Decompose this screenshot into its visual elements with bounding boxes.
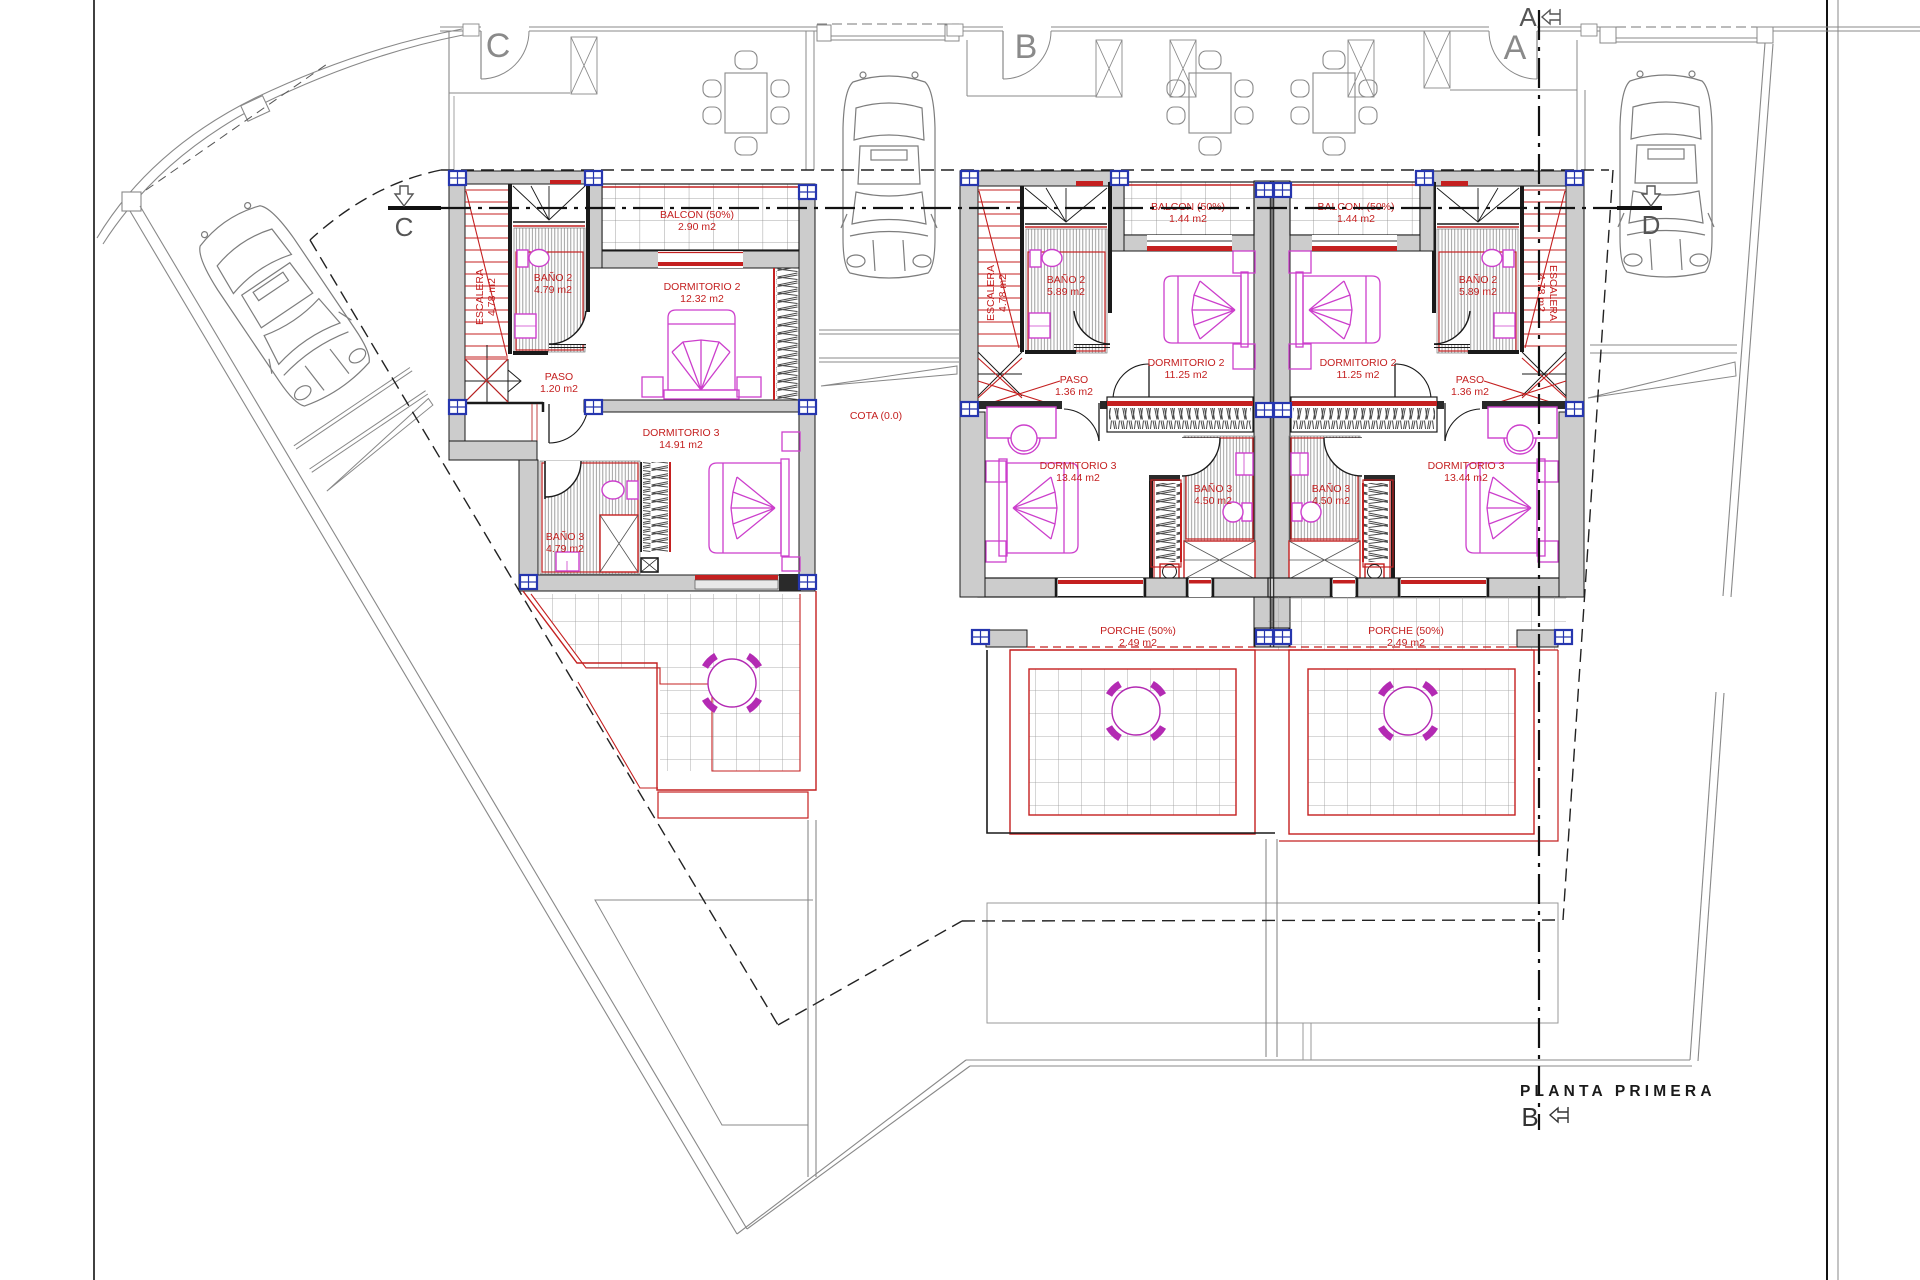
svg-text:B: B [1015,28,1038,66]
svg-text:13.44 m2: 13.44 m2 [1056,472,1100,484]
svg-text:DORMITORIO 2: DORMITORIO 2 [664,281,741,293]
svg-text:PORCHE (50%): PORCHE (50%) [1368,625,1444,637]
svg-text:14.91 m2: 14.91 m2 [659,439,703,451]
svg-text:COTA (0.0): COTA (0.0) [850,410,902,422]
svg-text:ESCALERA: ESCALERA [1547,265,1559,321]
svg-text:DORMITORIO 3: DORMITORIO 3 [1040,460,1117,472]
svg-text:ESCALERA: ESCALERA [474,269,486,325]
svg-text:BALCON (50%): BALCON (50%) [660,209,734,221]
svg-text:12.32 m2: 12.32 m2 [680,293,724,305]
svg-text:2.90 m2: 2.90 m2 [678,221,716,233]
svg-text:B: B [1521,1102,1538,1132]
svg-text:BAÑO 3: BAÑO 3 [1312,482,1351,495]
svg-text:PASO: PASO [1456,374,1484,386]
svg-text:PASO: PASO [1060,374,1088,386]
svg-text:DORMITORIO 3: DORMITORIO 3 [643,427,720,439]
svg-text:1.36 m2: 1.36 m2 [1451,386,1489,398]
svg-text:C: C [395,212,414,242]
svg-text:ESCALERA: ESCALERA [985,265,997,321]
svg-text:4.78 m2: 4.78 m2 [1535,274,1547,312]
svg-text:BAÑO 2: BAÑO 2 [1047,273,1086,286]
svg-text:PLANTA PRIMERA: PLANTA PRIMERA [1520,1083,1716,1100]
svg-text:4.79 m2: 4.79 m2 [534,284,572,296]
svg-text:4.50 m2: 4.50 m2 [1194,495,1232,507]
svg-text:5.89 m2: 5.89 m2 [1047,286,1085,298]
svg-text:DORMITORIO 3: DORMITORIO 3 [1428,460,1505,472]
svg-text:4.78 m2: 4.78 m2 [486,278,498,316]
svg-text:1.44 m2: 1.44 m2 [1169,213,1207,225]
svg-text:A: A [1519,2,1537,32]
svg-text:11.25 m2: 11.25 m2 [1337,369,1380,381]
svg-text:5.89 m2: 5.89 m2 [1459,286,1497,298]
svg-text:D: D [1642,210,1661,240]
svg-text:1.44 m2: 1.44 m2 [1337,213,1375,225]
svg-text:11.25 m2: 11.25 m2 [1165,369,1208,381]
svg-text:BAÑO 3: BAÑO 3 [546,530,585,543]
svg-text:PASO: PASO [545,371,573,383]
svg-text:DORMITORIO 2: DORMITORIO 2 [1148,357,1225,369]
svg-text:2.49 m2: 2.49 m2 [1119,637,1157,649]
svg-text:DORMITORIO 2: DORMITORIO 2 [1320,357,1397,369]
svg-text:4.78 m2: 4.78 m2 [997,274,1009,312]
svg-text:2.49 m2: 2.49 m2 [1387,637,1425,649]
svg-text:4.79 m2: 4.79 m2 [546,543,584,555]
svg-text:BAÑO 2: BAÑO 2 [534,271,573,284]
svg-text:1.20 m2: 1.20 m2 [540,383,578,395]
svg-text:BAÑO 2: BAÑO 2 [1459,273,1498,286]
svg-text:4.50 m2: 4.50 m2 [1312,495,1350,507]
svg-text:BAÑO 3: BAÑO 3 [1194,482,1233,495]
svg-text:1.36 m2: 1.36 m2 [1055,386,1093,398]
svg-text:13.44 m2: 13.44 m2 [1444,472,1488,484]
svg-text:A: A [1504,29,1527,67]
svg-text:PORCHE (50%): PORCHE (50%) [1100,625,1176,637]
svg-text:C: C [486,27,511,65]
